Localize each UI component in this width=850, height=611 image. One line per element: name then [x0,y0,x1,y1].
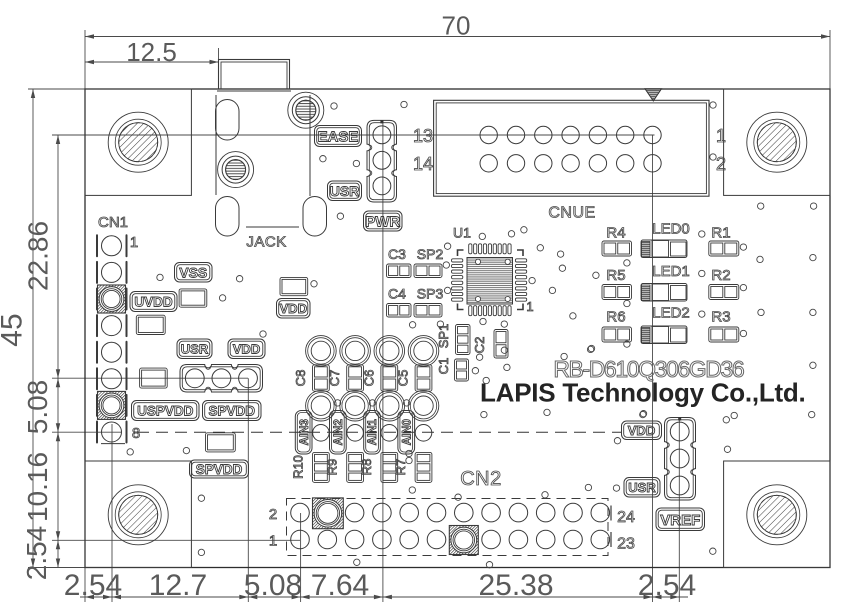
svg-text:13: 13 [413,126,433,146]
svg-text:CNUE: CNUE [548,205,595,222]
svg-text:R6: R6 [606,309,625,326]
svg-text:USPVDD: USPVDD [137,404,194,419]
svg-text:1: 1 [269,533,277,550]
svg-text:1: 1 [716,126,726,146]
svg-text:C7: C7 [327,370,342,387]
svg-text:R1: R1 [711,225,730,242]
svg-text:R5: R5 [606,267,625,284]
svg-text:2.54: 2.54 [64,569,122,602]
svg-text:2: 2 [716,154,726,174]
svg-text:VDD: VDD [280,301,307,316]
svg-text:SP2: SP2 [417,246,444,262]
svg-text:LED2: LED2 [652,305,690,322]
svg-text:VDD: VDD [628,423,655,438]
svg-text:2.54: 2.54 [21,526,52,581]
svg-text:8: 8 [132,425,140,442]
svg-text:LED0: LED0 [652,221,690,238]
svg-text:SP3: SP3 [417,286,444,302]
svg-text:VREF: VREF [660,512,700,529]
svg-text:45: 45 [0,313,29,346]
svg-text:R9: R9 [325,459,340,476]
svg-text:AIN3: AIN3 [299,419,311,445]
svg-text:U1: U1 [453,225,471,241]
svg-text:PWR: PWR [365,214,400,231]
svg-text:AIN2: AIN2 [333,419,345,445]
svg-text:C6: C6 [361,370,376,387]
svg-text:1: 1 [526,299,533,314]
svg-text:C8: C8 [293,370,308,387]
svg-text:AIN0: AIN0 [401,419,413,445]
svg-text:CN1: CN1 [98,214,128,231]
svg-text:LAPIS Technology Co.,Ltd.: LAPIS Technology Co.,Ltd. [480,378,805,408]
svg-text:JACK: JACK [246,234,286,251]
svg-text:VDD: VDD [233,342,260,357]
svg-text:UVDD: UVDD [134,295,173,310]
svg-text:VSS: VSS [179,265,207,281]
svg-text:CN2: CN2 [460,468,502,490]
svg-text:C2: C2 [472,337,487,354]
svg-text:SPVDD: SPVDD [208,404,255,419]
svg-text:C1: C1 [436,358,451,375]
svg-text:SPVDD: SPVDD [196,462,243,477]
svg-text:R10: R10 [290,455,305,479]
svg-text:25.38: 25.38 [478,569,553,602]
svg-text:EASE: EASE [318,129,359,146]
svg-text:USR: USR [181,342,209,357]
svg-text:5.08: 5.08 [22,380,53,435]
svg-text:C4: C4 [388,286,406,302]
svg-text:LED1: LED1 [652,263,690,280]
svg-text:5.08: 5.08 [244,569,302,602]
svg-text:R8: R8 [359,459,374,476]
svg-text:2: 2 [269,506,277,523]
svg-text:7.64: 7.64 [311,569,369,602]
svg-text:R4: R4 [606,225,625,242]
svg-text:70: 70 [442,11,471,41]
svg-text:C5: C5 [396,370,411,387]
svg-text:12.7: 12.7 [149,569,207,602]
svg-text:10.16: 10.16 [22,452,53,522]
svg-text:24: 24 [617,509,635,526]
svg-text:AIN1: AIN1 [367,418,379,445]
svg-text:SP1: SP1 [436,324,451,349]
svg-text:USR: USR [628,480,656,495]
svg-text:22.86: 22.86 [23,221,54,291]
svg-text:1: 1 [130,234,138,251]
svg-text:2.54: 2.54 [638,569,696,602]
svg-text:14: 14 [413,154,433,174]
svg-text:R3: R3 [711,309,730,326]
svg-text:12.5: 12.5 [126,37,177,67]
svg-text:R2: R2 [711,267,730,284]
svg-text:23: 23 [617,536,635,553]
svg-text:USR: USR [330,183,360,199]
svg-text:C3: C3 [388,246,406,262]
